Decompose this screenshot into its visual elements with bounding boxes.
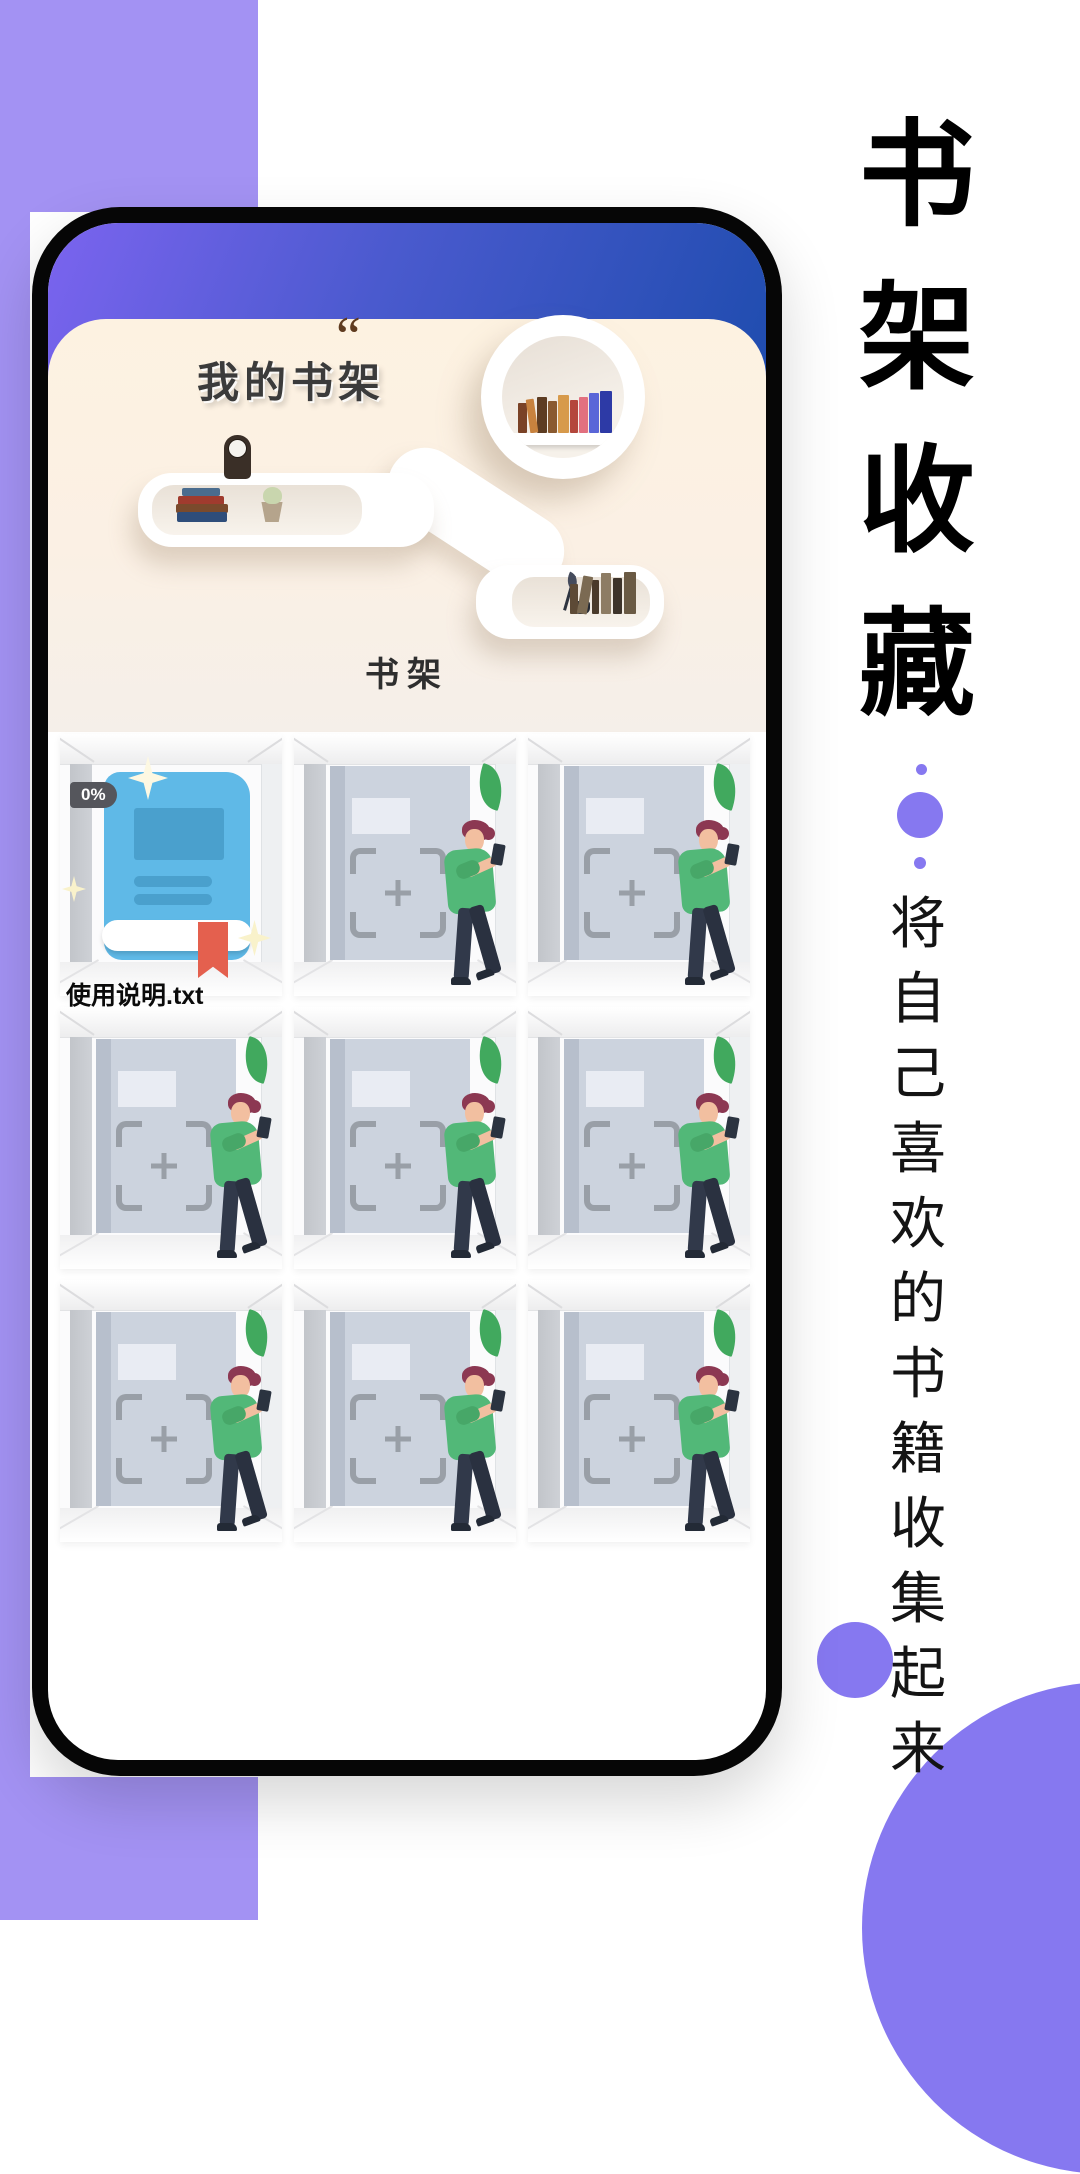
- wall-shelf-upper: [138, 473, 434, 547]
- person-illustration: [434, 1366, 514, 1536]
- empty-book-slot[interactable]: [60, 1280, 282, 1542]
- purple-strip-left-edge: [0, 0, 30, 1920]
- divider-dot-small-bottom: [914, 857, 926, 869]
- add-book-scan-icon: [350, 848, 446, 938]
- phone-mockup: “ 我的书架: [32, 207, 782, 1776]
- round-shelf-illustration: [481, 315, 645, 479]
- headline-char: 书: [852, 100, 982, 263]
- smartphone-icon: [256, 1116, 271, 1139]
- add-book-scan-icon: [584, 1394, 680, 1484]
- headline-char: 收: [852, 426, 982, 589]
- smartphone-icon: [490, 1116, 505, 1139]
- divider-dot-small-top: [916, 764, 927, 775]
- shelf-section-label: 书架: [48, 647, 766, 696]
- smartphone-icon: [256, 1389, 271, 1412]
- add-book-scan-icon: [350, 1121, 446, 1211]
- empty-book-slot[interactable]: [528, 734, 750, 996]
- purple-rect-bottom-left: [0, 1777, 258, 1920]
- divider-dot-large: [897, 792, 943, 838]
- file-name-label: 使用说明.txt: [66, 976, 204, 1012]
- add-book-scan-icon: [584, 1121, 680, 1211]
- phone-screen: “ 我的书架: [48, 223, 766, 1760]
- clock-icon: [224, 435, 251, 479]
- add-book-scan-icon: [350, 1394, 446, 1484]
- empty-book-slot[interactable]: [528, 1007, 750, 1269]
- person-illustration: [434, 1093, 514, 1263]
- book-cover-icon: [104, 772, 250, 960]
- headline-char: 藏: [852, 589, 982, 752]
- empty-book-slot[interactable]: [60, 1007, 282, 1269]
- marketing-tagline: 将 自 己 喜 欢 的 书 籍 收 集 起 来: [854, 888, 982, 1788]
- person-illustration: [200, 1093, 280, 1263]
- smartphone-icon: [490, 1389, 505, 1412]
- add-book-scan-icon: [116, 1121, 212, 1211]
- empty-book-slot[interactable]: [294, 1280, 516, 1542]
- person-illustration: [668, 820, 748, 990]
- shelf-books-icon: [512, 391, 618, 433]
- purple-rect-top-left: [0, 0, 258, 212]
- plant-pot-icon: [260, 502, 284, 522]
- shelf-books-icon: [570, 572, 636, 614]
- progress-badge: 0%: [70, 782, 117, 808]
- person-illustration: [200, 1366, 280, 1536]
- page-title: 我的书架: [197, 349, 385, 410]
- empty-book-slot[interactable]: [294, 1007, 516, 1269]
- empty-book-slot[interactable]: [294, 734, 516, 996]
- person-illustration: [434, 820, 514, 990]
- person-illustration: [668, 1093, 748, 1263]
- wall-shelf-lower: [476, 565, 664, 639]
- bookshelf-grid: 0% 使用说明.txt: [60, 734, 754, 1542]
- headline-char: 架: [852, 263, 982, 426]
- marketing-headline: 书 架 收 藏: [852, 100, 982, 752]
- book-slot[interactable]: 0% 使用说明.txt: [60, 734, 282, 996]
- person-illustration: [668, 1366, 748, 1536]
- smartphone-icon: [490, 843, 505, 866]
- add-book-scan-icon: [116, 1394, 212, 1484]
- smartphone-icon: [724, 1116, 739, 1139]
- smartphone-icon: [724, 843, 739, 866]
- plant-icon: [263, 487, 282, 504]
- empty-book-slot[interactable]: [528, 1280, 750, 1542]
- add-book-scan-icon: [584, 848, 680, 938]
- smartphone-icon: [724, 1389, 739, 1412]
